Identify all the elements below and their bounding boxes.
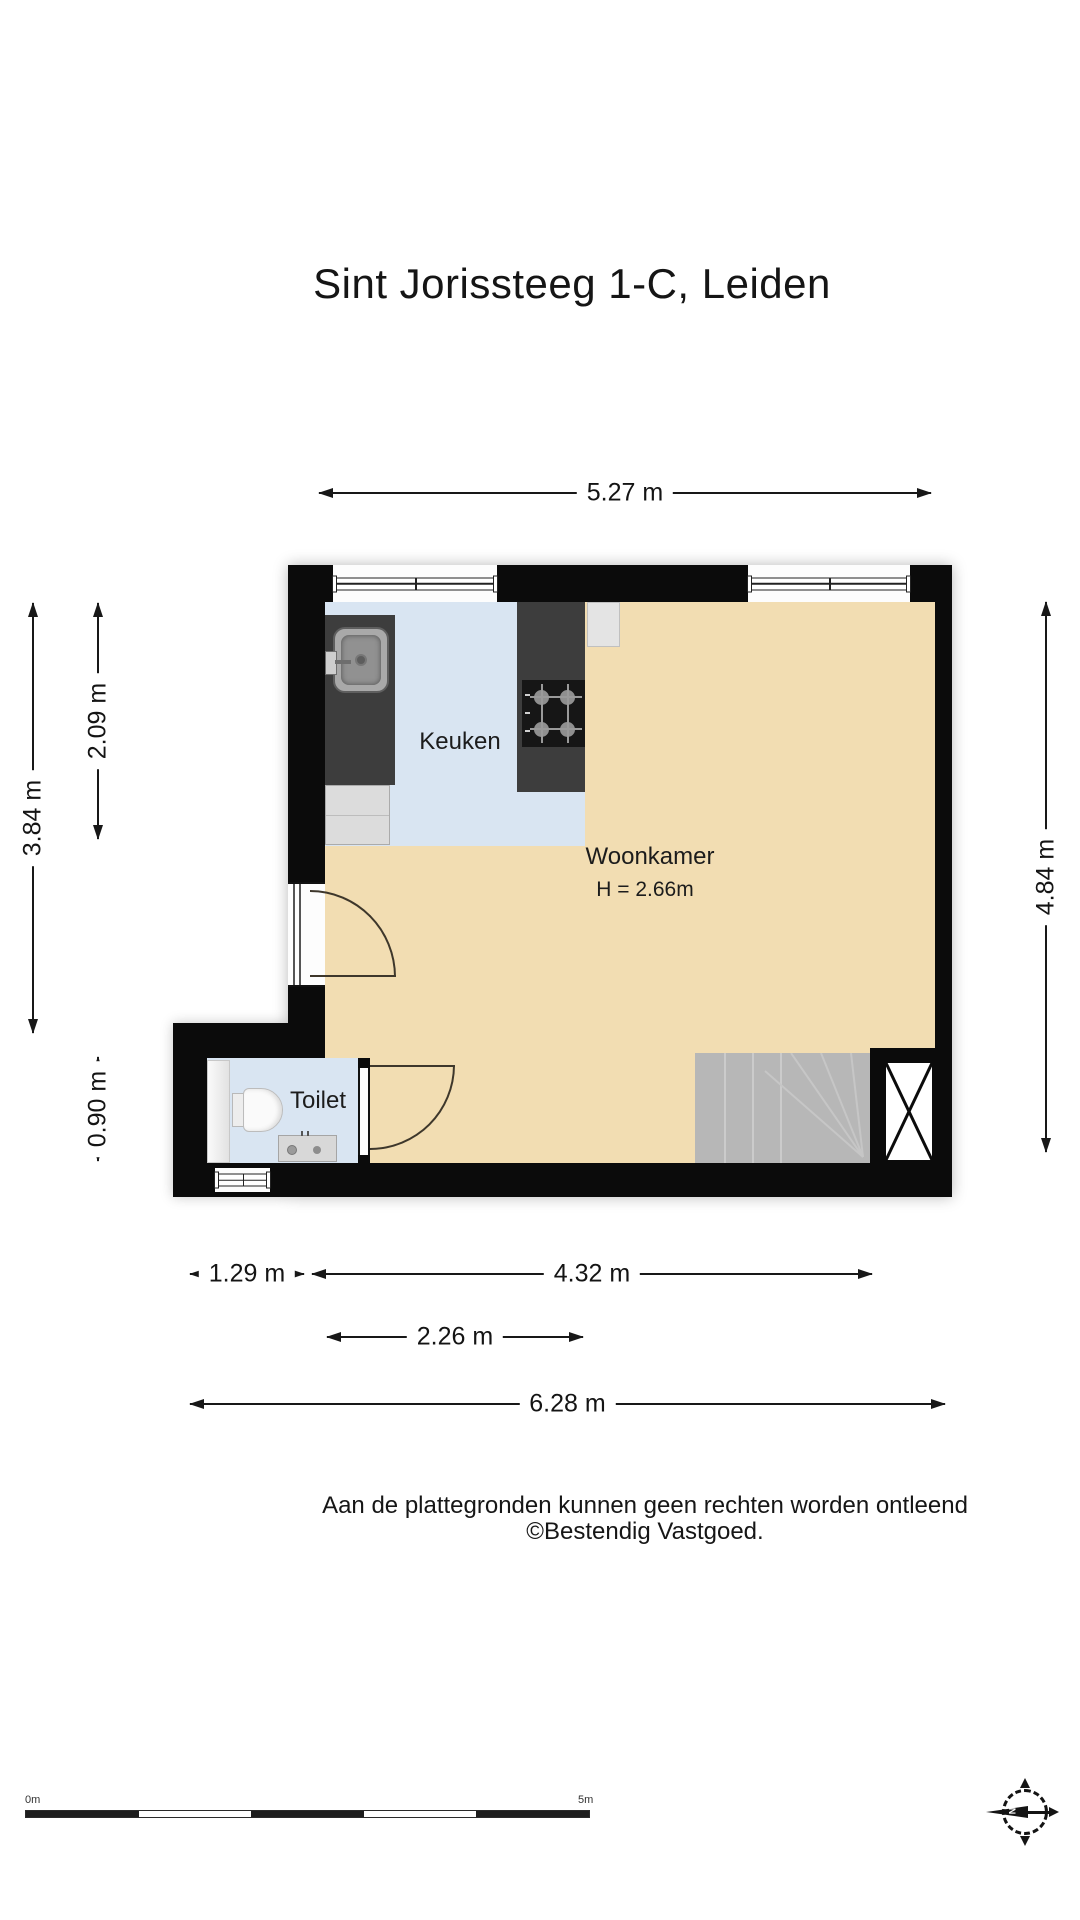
door-frame-line [293,884,295,985]
toilet-side-panel [207,1060,230,1163]
dimension-toilet-height: 0.90 m [85,1056,111,1162]
dimension-bottom-total-width: 6.28 m [189,1391,946,1417]
kitchen-appliance-block [587,602,620,647]
window-divider [243,1175,245,1186]
compass-tick-north [1020,1778,1030,1788]
window-cap [906,575,911,592]
wall-toilet-right-stub-bottom [358,1155,370,1163]
living-room-label: Woonkamer [586,843,715,871]
dimension-value: 2.09 m [84,673,113,769]
toilet-seat [243,1088,283,1132]
dimension-value: 3.84 m [19,770,48,866]
sink-taps [301,1131,303,1136]
arrow-left-icon [326,1332,341,1342]
stove-knob [525,694,530,696]
dimension-value: 1.29 m [199,1260,295,1289]
dimension-kitchen-height: 2.09 m [85,602,111,840]
arrow-left-icon [189,1399,204,1409]
dimension-right-height: 4.84 m [1033,601,1059,1153]
floorplan-page: Sint Jorissteeg 1-C, Leiden [0,0,1080,1920]
scale-segment [364,1811,477,1817]
dimension-value: 5.27 m [577,479,673,508]
toilet-bowl-icon [232,1088,283,1132]
arrow-down-icon [1041,1138,1051,1153]
kitchen-sink [333,627,389,693]
wall-toilet-right-stub-top [358,1058,370,1068]
stove-grid-line [541,684,543,743]
window-cap [493,575,498,592]
toilet-door-opening [358,1068,370,1155]
scale-bar [25,1810,590,1818]
kitchen-label: Keuken [419,728,500,756]
stairs-treads [695,1053,870,1163]
scale-segment [251,1811,364,1817]
arrow-down-icon [28,1019,38,1034]
kitchen-cabinet [325,785,390,845]
disclaimer-line2: ©Bestendig Vastgoed. [526,1518,763,1546]
arrow-right-icon [931,1399,946,1409]
disclaimer-line1: Aan de plattegronden kunnen geen rechten… [322,1492,968,1520]
dimension-value: 2.26 m [407,1323,503,1352]
stove-knob [525,712,530,714]
arrow-up-icon [93,602,103,617]
wall-above-shaft [870,1048,935,1060]
wall-right [935,602,952,1163]
dimension-kitchen-width: 2.26 m [326,1324,584,1350]
window-divider [829,578,831,589]
stove-icon [522,680,585,747]
stairs [695,1053,870,1163]
compass-tick-south [1020,1836,1030,1846]
dimension-value: 4.32 m [544,1260,640,1289]
floorplan: Keuken Woonkamer H = 2.66m Toilet [173,565,952,1197]
sink-faucet-dot [313,1146,321,1154]
page-title: Sint Jorissteeg 1-C, Leiden [313,260,831,308]
dimension-living-width: 4.32 m [311,1261,873,1287]
arrow-right-icon [858,1269,873,1279]
stove-grid-line [530,696,582,698]
wall-bottom [173,1163,952,1197]
scale-segment [139,1811,252,1817]
compass-icon: N [985,1772,1065,1852]
toilet-sink-icon [278,1135,337,1162]
arrow-up-icon [1041,601,1051,616]
scale-segment [476,1811,589,1817]
window-glazing [215,1174,270,1187]
window-cap [214,1172,219,1189]
dimension-left-total-height: 3.84 m [20,602,46,1034]
sink-spout [335,660,351,664]
window-divider [415,578,417,589]
arrow-right-icon [917,488,932,498]
door-frame-line [299,884,301,985]
window-glazing [748,577,910,590]
toilet-window [215,1168,270,1192]
toilet-label: Toilet [290,1087,346,1115]
living-room-window [748,565,910,602]
window-glazing [333,577,497,590]
window-cap [266,1172,271,1189]
arrow-right-icon [569,1332,584,1342]
scale-start-label: 0m [25,1794,40,1806]
window-cap [332,575,337,592]
wall-left-upper [288,565,325,882]
sink-drain [355,654,367,666]
arrow-up-icon [28,602,38,617]
sink-drain [287,1145,297,1155]
compass-needle-tail [1027,1811,1051,1814]
dimension-toilet-width: 1.29 m [189,1261,305,1287]
window-cap [747,575,752,592]
scale-segment [26,1811,139,1817]
arrow-left-icon [318,488,333,498]
scale-end-label: 5m [578,1794,593,1806]
kitchen-window [333,565,497,602]
wall-stairs-divider [870,1060,883,1163]
stove-grid-line [567,684,569,743]
arrow-down-icon [93,825,103,840]
dimension-value: 0.90 m [84,1061,113,1157]
wall-left-lower [288,987,325,1058]
dimension-value: 6.28 m [519,1390,615,1419]
compass-north-label: N [1007,1808,1017,1815]
arrow-left-icon [311,1269,326,1279]
ceiling-height-label: H = 2.66m [596,878,693,902]
stove-knob [525,730,530,732]
dimension-top-width: 5.27 m [318,480,932,506]
shaft-cross-icon [886,1063,932,1160]
wall-toilet-top [173,1023,288,1058]
dimension-value: 4.84 m [1032,829,1061,925]
stove-grid-line [530,728,582,730]
shaft-void-box [883,1060,935,1163]
cabinet-divider [326,815,389,816]
